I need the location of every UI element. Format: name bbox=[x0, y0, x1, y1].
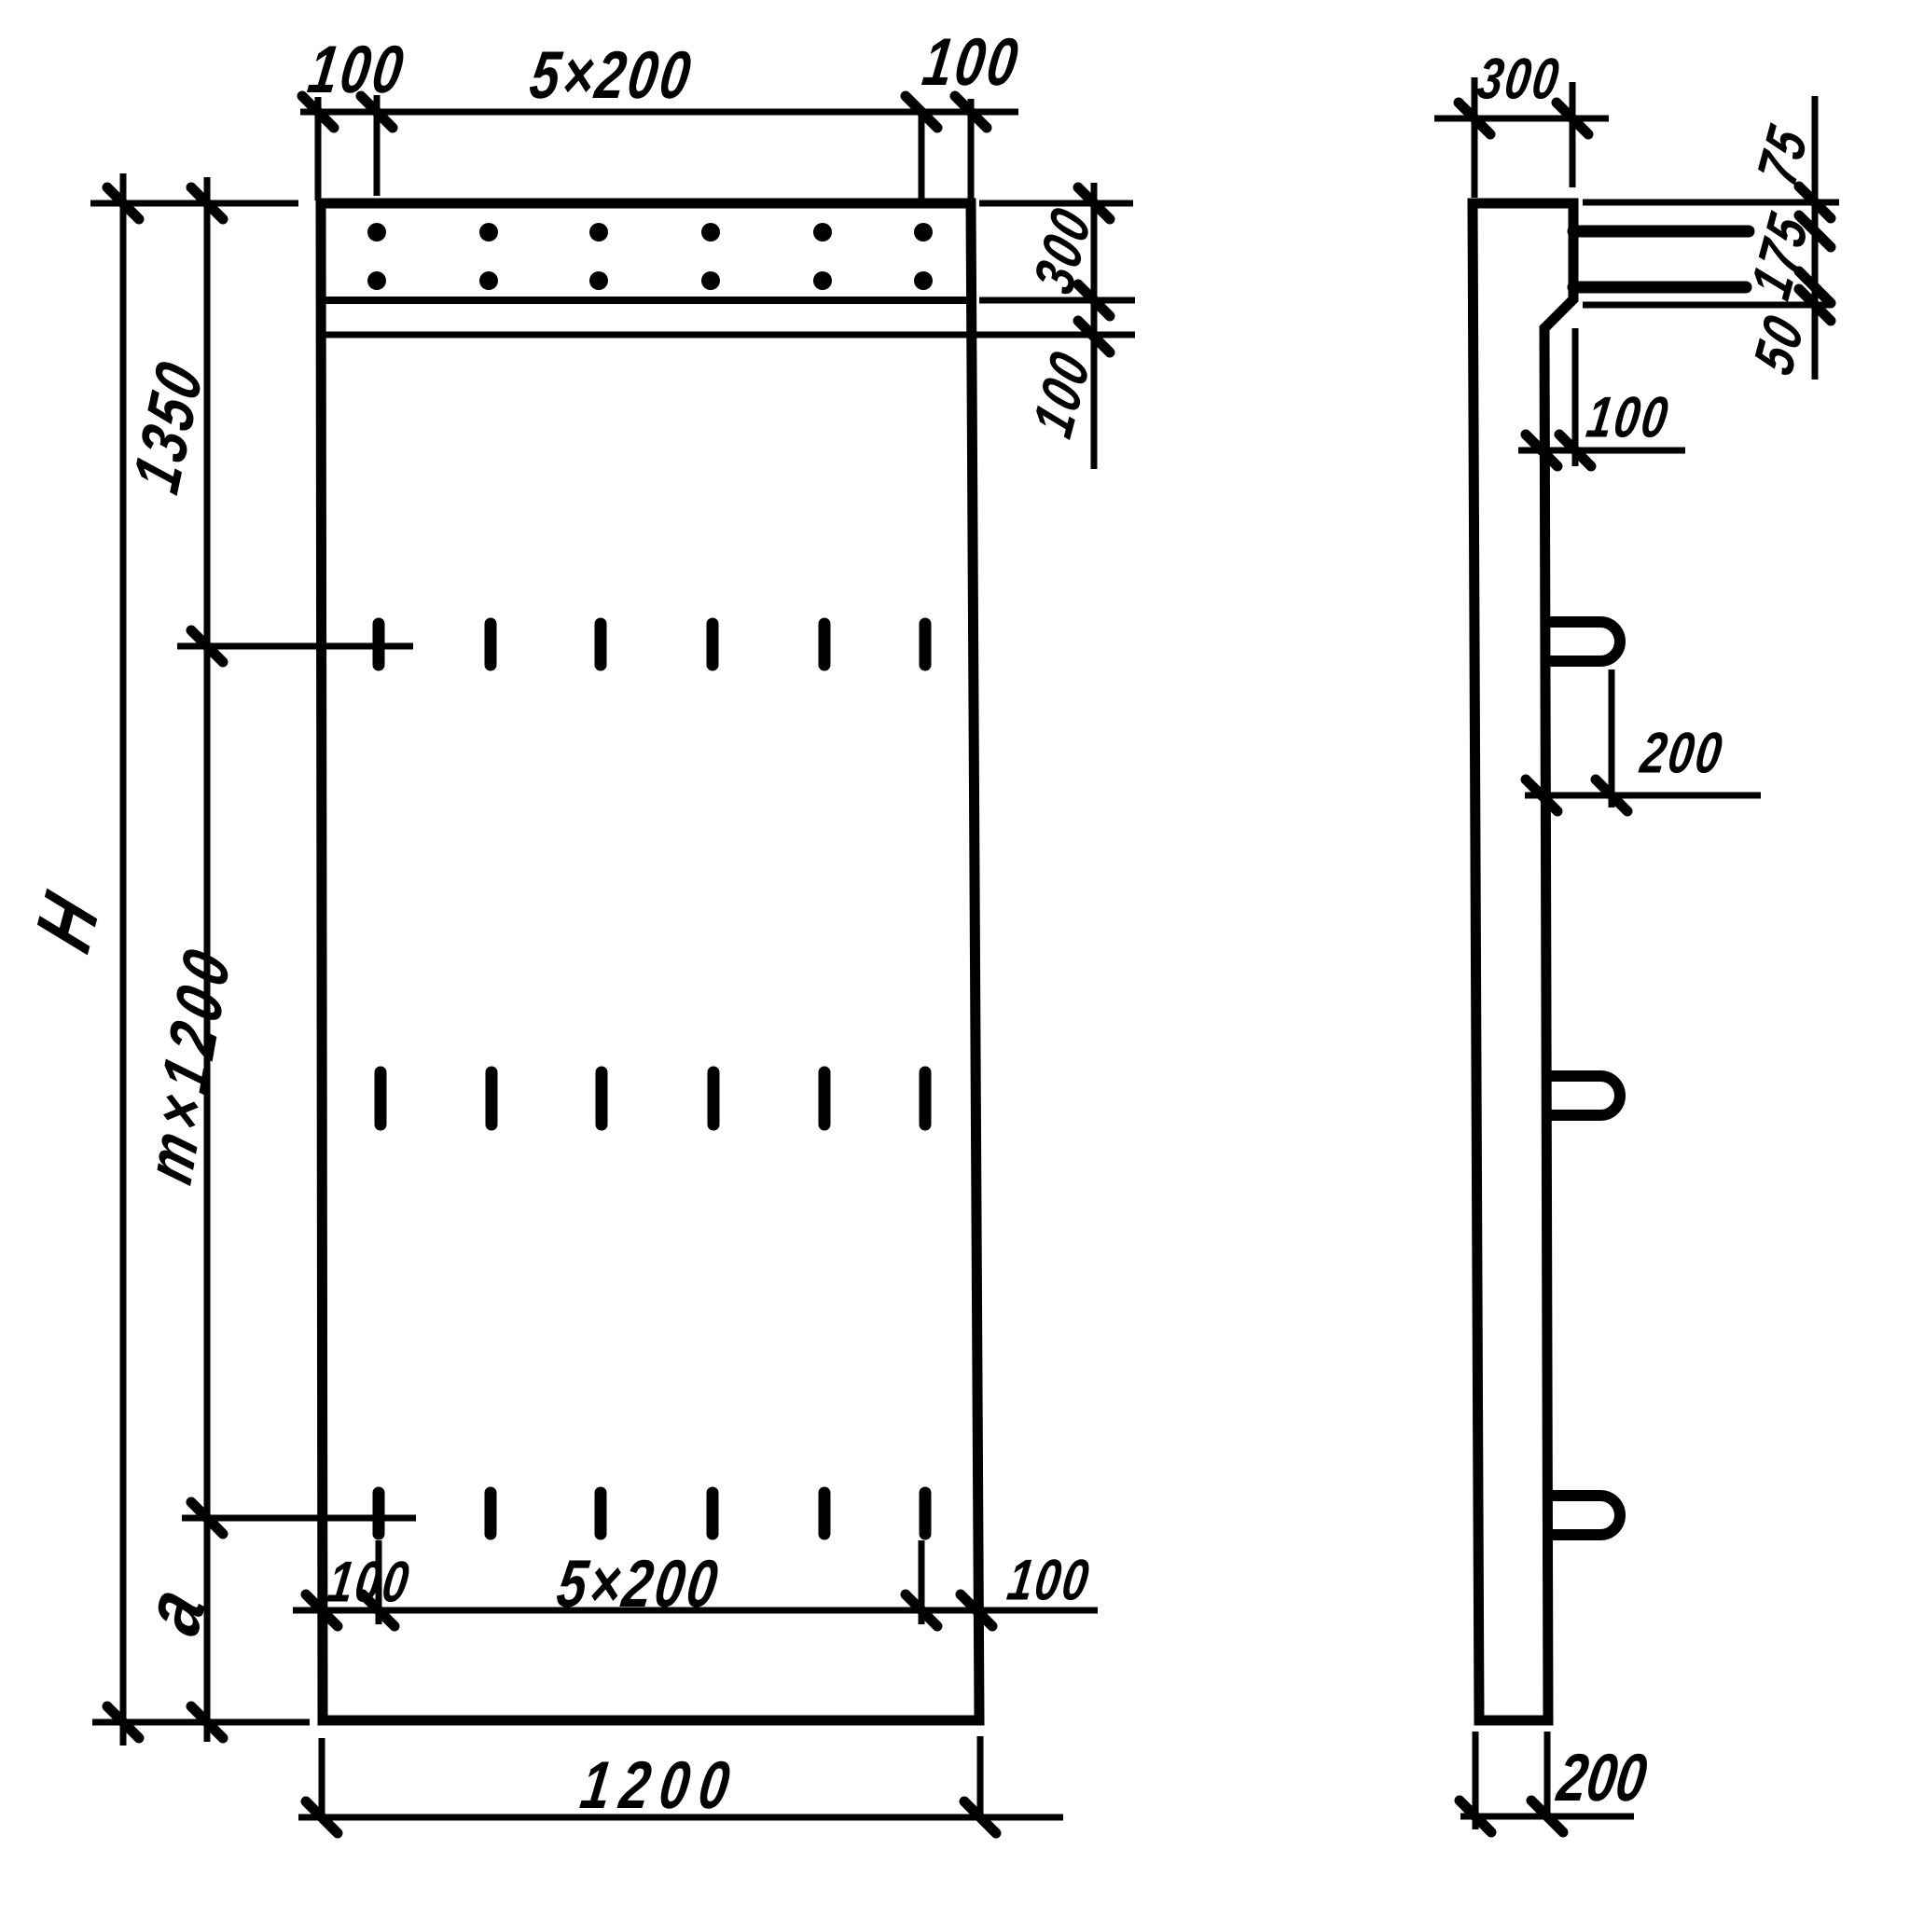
svg-text:200: 200 bbox=[1552, 1740, 1652, 1815]
svg-text:50: 50 bbox=[1741, 305, 1816, 383]
svg-text:1350: 1350 bbox=[118, 351, 216, 502]
svg-text:100: 100 bbox=[919, 24, 1025, 100]
svg-text:200: 200 bbox=[1636, 720, 1727, 785]
svg-text:m×1200: m×1200 bbox=[131, 934, 245, 1192]
svg-text:100: 100 bbox=[1583, 384, 1674, 449]
svg-text:5×200: 5×200 bbox=[526, 37, 699, 113]
svg-text:75: 75 bbox=[1745, 116, 1820, 194]
svg-text:H: H bbox=[18, 879, 116, 963]
svg-text:1200: 1200 bbox=[576, 1747, 744, 1823]
svg-text:100: 100 bbox=[1020, 341, 1102, 446]
svg-text:5×200: 5×200 bbox=[553, 1546, 726, 1621]
svg-text:100: 100 bbox=[324, 1549, 415, 1614]
svg-text:100: 100 bbox=[304, 32, 410, 107]
svg-text:100: 100 bbox=[1003, 1547, 1095, 1612]
svg-text:300: 300 bbox=[1474, 46, 1565, 111]
